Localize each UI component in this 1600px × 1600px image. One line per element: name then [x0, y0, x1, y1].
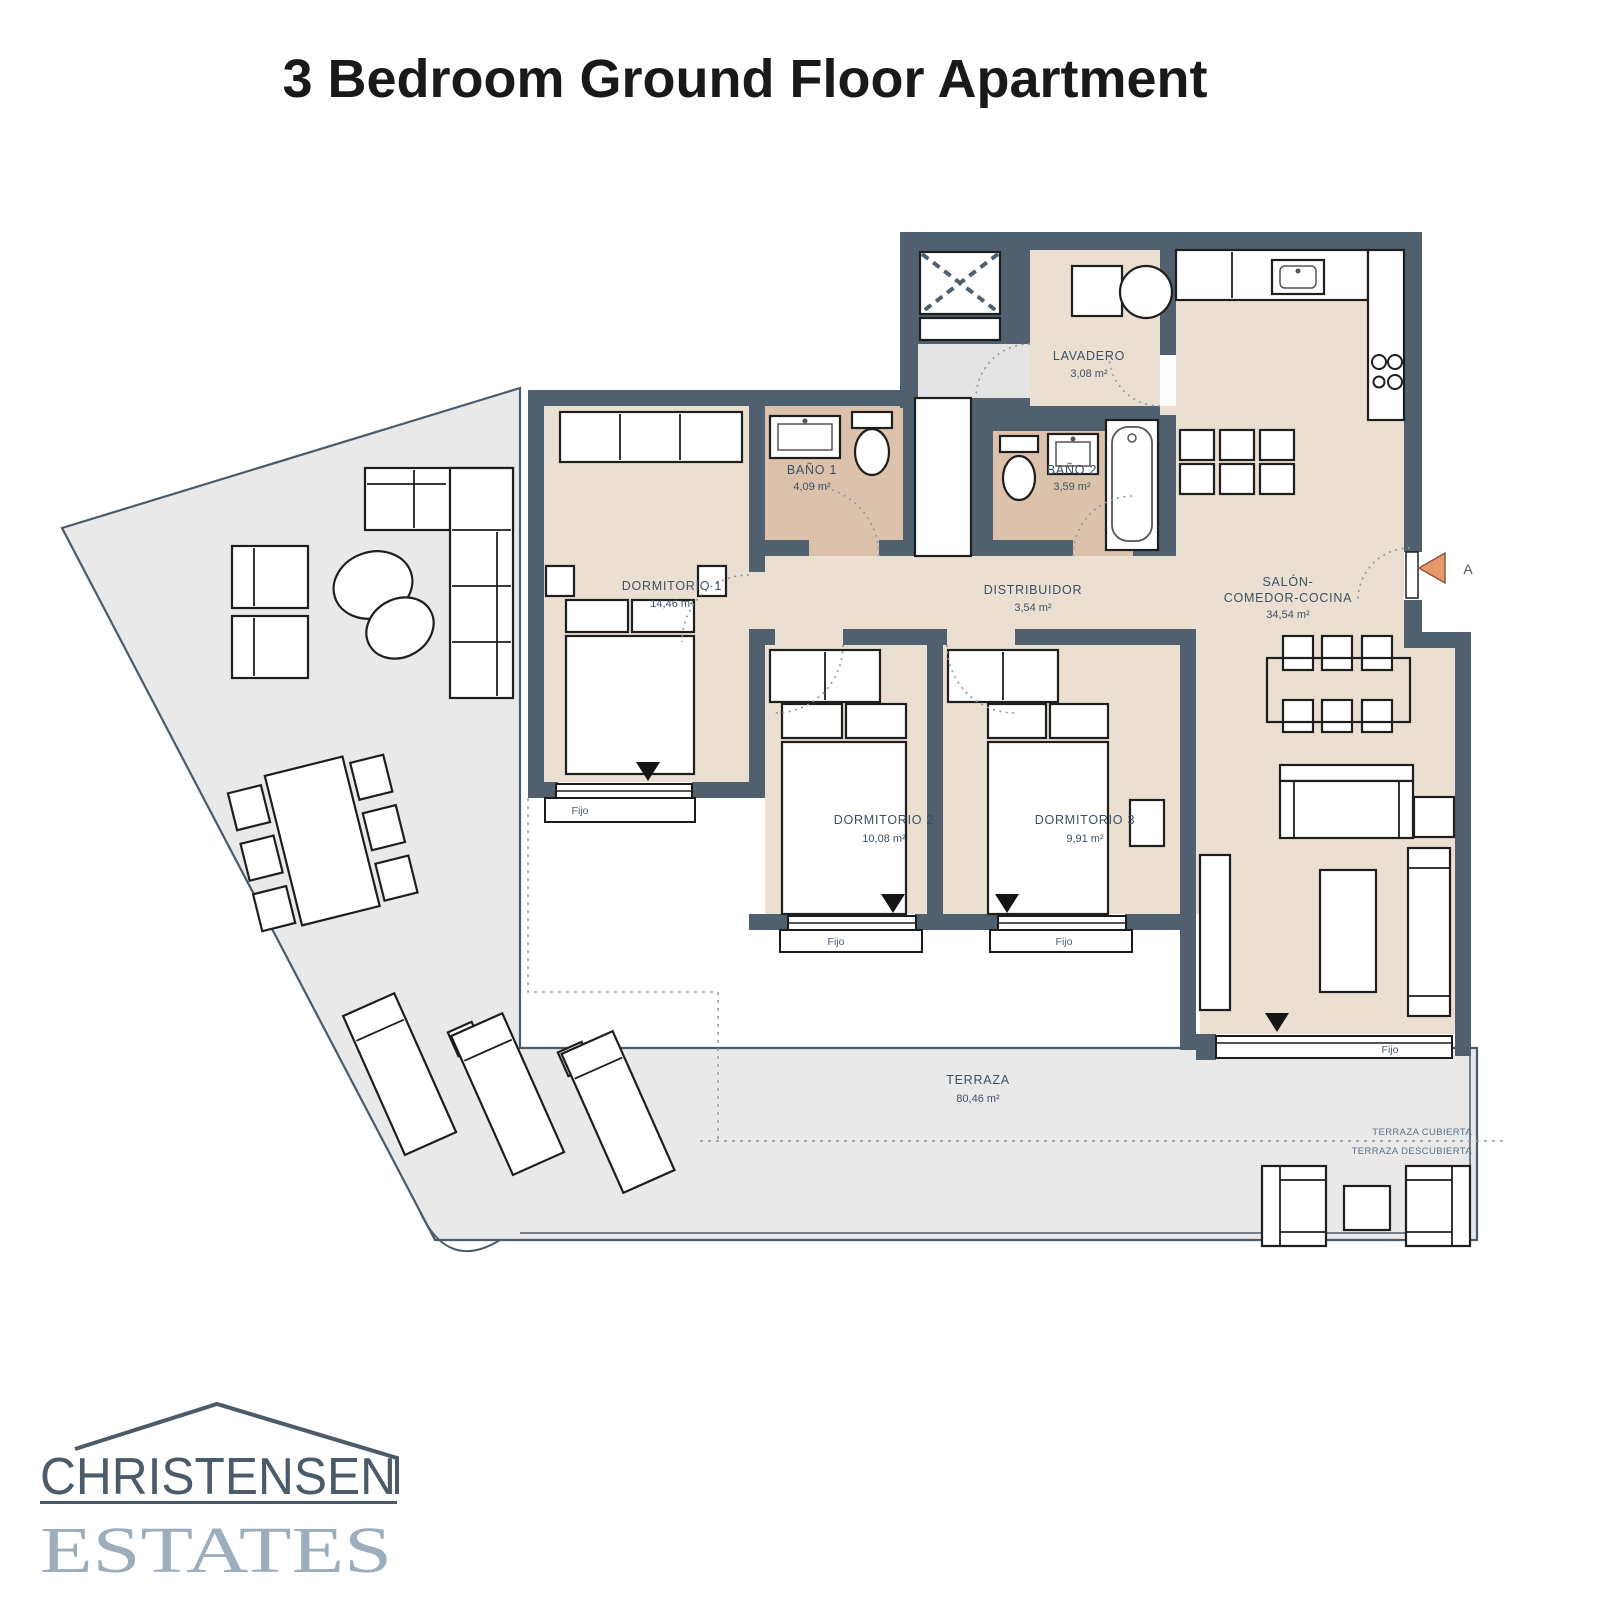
terrace-side-table: [1344, 1186, 1390, 1230]
vent-box: [920, 318, 1000, 340]
sofa: [1280, 765, 1413, 838]
dining-set: [1267, 636, 1410, 732]
room-label-dormitorio1: DORMITORIO 1: [622, 579, 722, 593]
room-area-bano2: 3,59 m²: [1053, 481, 1091, 493]
room-area-salon: 34,54 m²: [1266, 609, 1310, 621]
entrance-marker: A: [1419, 553, 1473, 583]
room-label-dormitorio2: DORMITORIO 2: [834, 813, 934, 827]
entry-lobby: [918, 344, 1030, 398]
window-fixed-label: Fijo: [828, 936, 845, 948]
room-label-terraza: TERRAZA: [946, 1073, 1010, 1087]
room-area-terraza: 80,46 m²: [956, 1093, 1000, 1105]
outdoor-armchair: [232, 616, 308, 678]
room-area-dormitorio3: 9,91 m²: [1066, 833, 1104, 845]
outdoor-armchair: [232, 546, 308, 608]
terrace-uncovered-label: TERRAZA DESCUBIERTA: [1352, 1146, 1473, 1157]
window-fixed-label: Fijo: [572, 805, 589, 817]
sideboard: [1200, 855, 1230, 1010]
wardrobe: [948, 650, 1058, 702]
room-label-distribuidor: DISTRIBUIDOR: [984, 583, 1083, 597]
window-fixed-label: Fijo: [1056, 936, 1073, 948]
toilet-icon: [1000, 436, 1038, 500]
room-area-dormitorio1: 14,46 m²: [650, 598, 694, 610]
room-label-bano2: BAÑO 2: [1047, 463, 1097, 477]
section-marker-label: A: [1463, 561, 1473, 577]
page-title: 3 Bedroom Ground Floor Apartment: [282, 49, 1207, 109]
terrace-lounge-chair: [1262, 1166, 1326, 1246]
coffee-table: [1320, 870, 1376, 992]
entrance-arrow-icon: [1419, 553, 1445, 583]
kitchen-counter-right: [1368, 250, 1404, 420]
entry-door-leaf: [1406, 552, 1418, 598]
room-label-dormitorio3: DORMITORIO 3: [1035, 813, 1135, 827]
room-label-salon-2: COMEDOR-COCINA: [1224, 591, 1353, 605]
toilet-icon: [852, 412, 892, 475]
washer-icon: [1072, 266, 1122, 316]
room-area-lavadero: 3,08 m²: [1070, 368, 1108, 380]
terrace-covered-label: TERRAZA CUBIERTA: [1372, 1127, 1472, 1138]
bathtub-icon: [1106, 420, 1158, 550]
room-area-bano1: 4,09 m²: [793, 481, 831, 493]
wardrobe: [770, 650, 880, 702]
chaise-lounge: [1408, 848, 1450, 1016]
room-area-dormitorio2: 10,08 m²: [862, 833, 906, 845]
laundry: [1072, 266, 1172, 318]
room-label-salon-1: SALÓN-: [1262, 574, 1313, 589]
room-label-bano1: BAÑO 1: [787, 463, 837, 477]
brand-logo: CHRISTENSEN ESTATES: [40, 1404, 397, 1587]
logo-subname: ESTATES: [40, 1514, 392, 1587]
logo-divider: [40, 1501, 397, 1504]
floorplan-canvas: 3 Bedroom Ground Floor Apartment TERRAZA…: [0, 0, 1600, 1600]
terrace-lounge-chair: [1406, 1166, 1470, 1246]
nightstand: [546, 566, 574, 596]
dryer-icon: [1120, 266, 1172, 318]
room-area-distribuidor: 3,54 m²: [1014, 602, 1052, 614]
window-fixed-label: Fijo: [1382, 1044, 1399, 1056]
side-table: [1414, 797, 1454, 837]
room-label-lavadero: LAVADERO: [1053, 349, 1125, 363]
wardrobe: [560, 412, 742, 462]
logo-name: CHRISTENSEN: [40, 1448, 396, 1506]
closet-column: [915, 398, 971, 556]
